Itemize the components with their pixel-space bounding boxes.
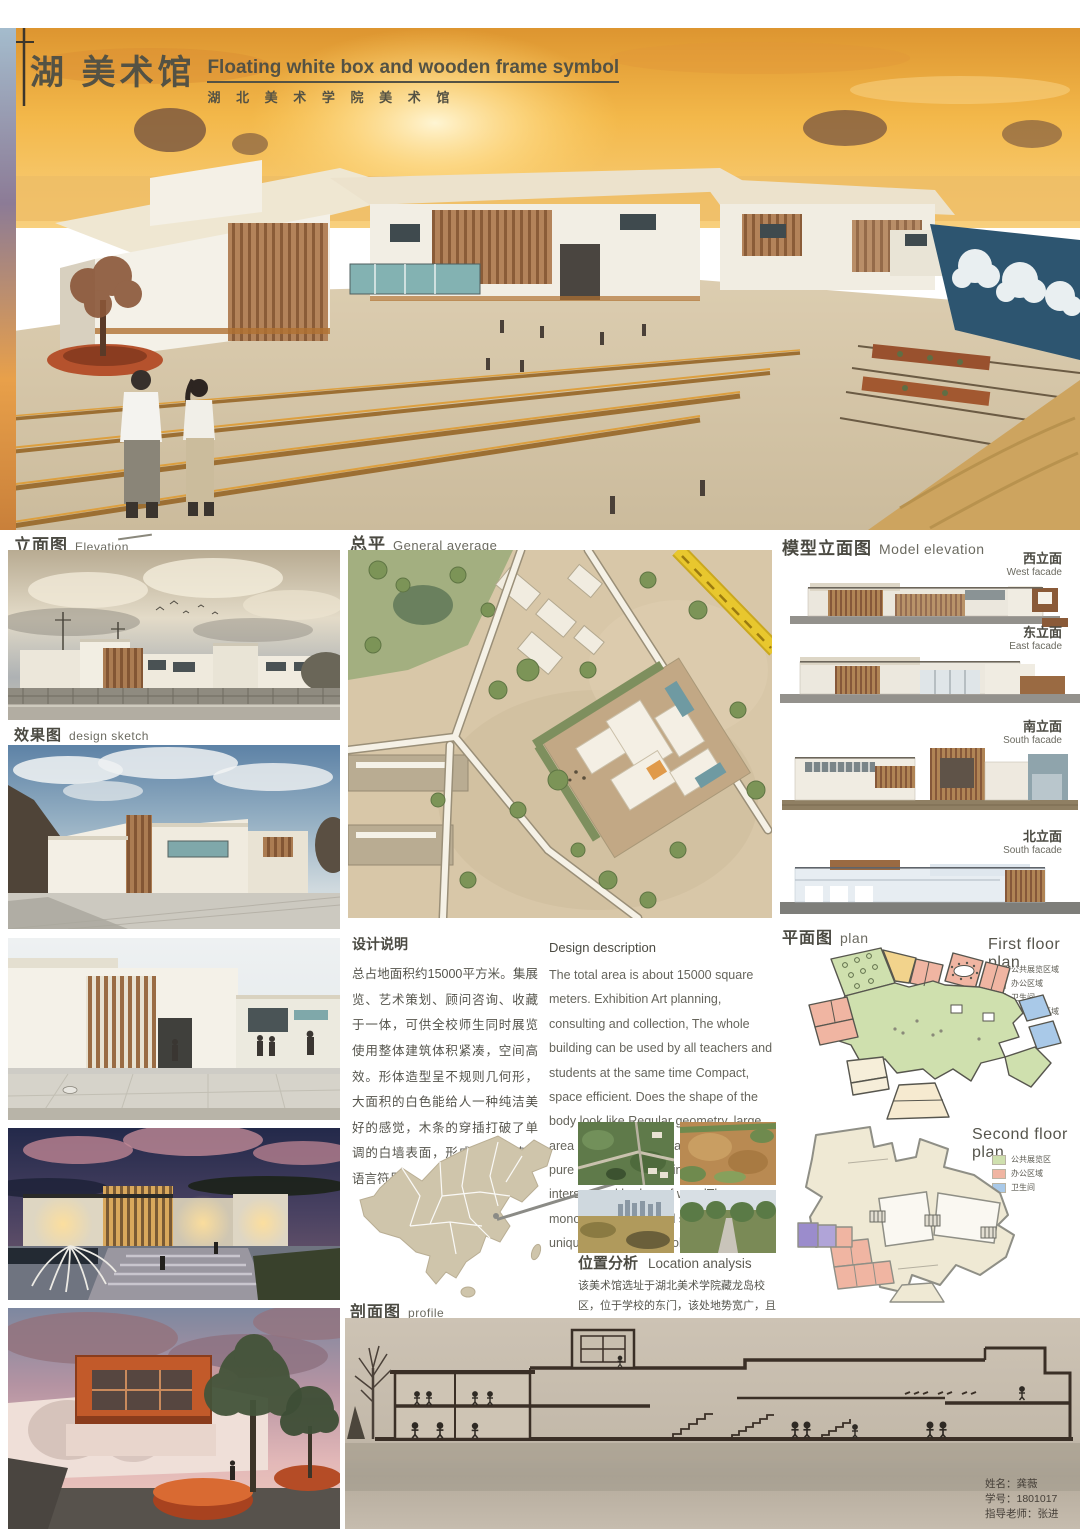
facade-north-drawing <box>780 854 1080 923</box>
site-photo-2 <box>680 1122 776 1190</box>
page-title: 湖 美术馆 <box>30 56 195 90</box>
site-photo-4 <box>680 1190 776 1258</box>
section-drawing <box>345 1318 1080 1529</box>
sketch-render-1 <box>8 745 340 934</box>
dusk-render <box>8 1308 340 1529</box>
facade-west-label: 西立面 West facade <box>900 552 1062 578</box>
location-title-en: Location analysis <box>648 1256 752 1271</box>
sketch-section-label: 效果图 design sketch <box>14 724 149 745</box>
facade-south-cn: 南立面 <box>900 720 1062 735</box>
sketch-label-en: design sketch <box>69 729 149 743</box>
site-photo-3 <box>578 1190 674 1258</box>
credit-name: 姓名：龚薇 <box>985 1477 1059 1492</box>
design-description-en-title: Design description <box>549 940 781 955</box>
first-floor-plan-drawing <box>783 943 1068 1130</box>
facade-north-cn: 北立面 <box>900 830 1062 845</box>
credit-advisor: 指导老师：张进 <box>985 1507 1059 1522</box>
credits: 姓名：龚薇 学号：1801017 指导老师：张进 <box>985 1477 1059 1523</box>
facade-south-drawing <box>780 744 1080 823</box>
night-render <box>8 1128 340 1305</box>
sketch-label-cn: 效果图 <box>14 724 62 745</box>
site-photo-1 <box>578 1122 674 1190</box>
facade-west-cn: 西立面 <box>900 552 1062 567</box>
subtitle-en: Floating white box and wooden frame symb… <box>207 58 619 83</box>
subtitle-cn: 湖 北 美 术 学 院 美 术 馆 <box>207 87 619 106</box>
elevation-render <box>8 550 340 725</box>
credit-student-id: 学号：1801017 <box>985 1492 1059 1507</box>
facade-east-label: 东立面 East facade <box>900 626 1062 652</box>
sketch-render-2 <box>8 938 340 1125</box>
title-block: 湖 美术馆 Floating white box and wooden fram… <box>30 56 619 106</box>
second-floor-plan-drawing <box>778 1123 1078 1308</box>
china-map <box>350 1126 568 1307</box>
facade-east-drawing <box>780 650 1080 710</box>
facade-south-label: 南立面 South facade <box>900 720 1062 746</box>
presentation-board: 湖 美术馆 Floating white box and wooden fram… <box>0 0 1080 1529</box>
facade-east-cn: 东立面 <box>900 626 1062 641</box>
design-description-cn-title: 设计说明 <box>352 934 538 954</box>
model-label-cn: 模型立面图 <box>782 534 872 559</box>
site-plan-map <box>348 550 772 923</box>
location-title-cn: 位置分析 <box>578 1252 638 1273</box>
facade-north-label: 北立面 South facade <box>900 830 1062 856</box>
facade-west-en: West facade <box>900 567 1062 579</box>
